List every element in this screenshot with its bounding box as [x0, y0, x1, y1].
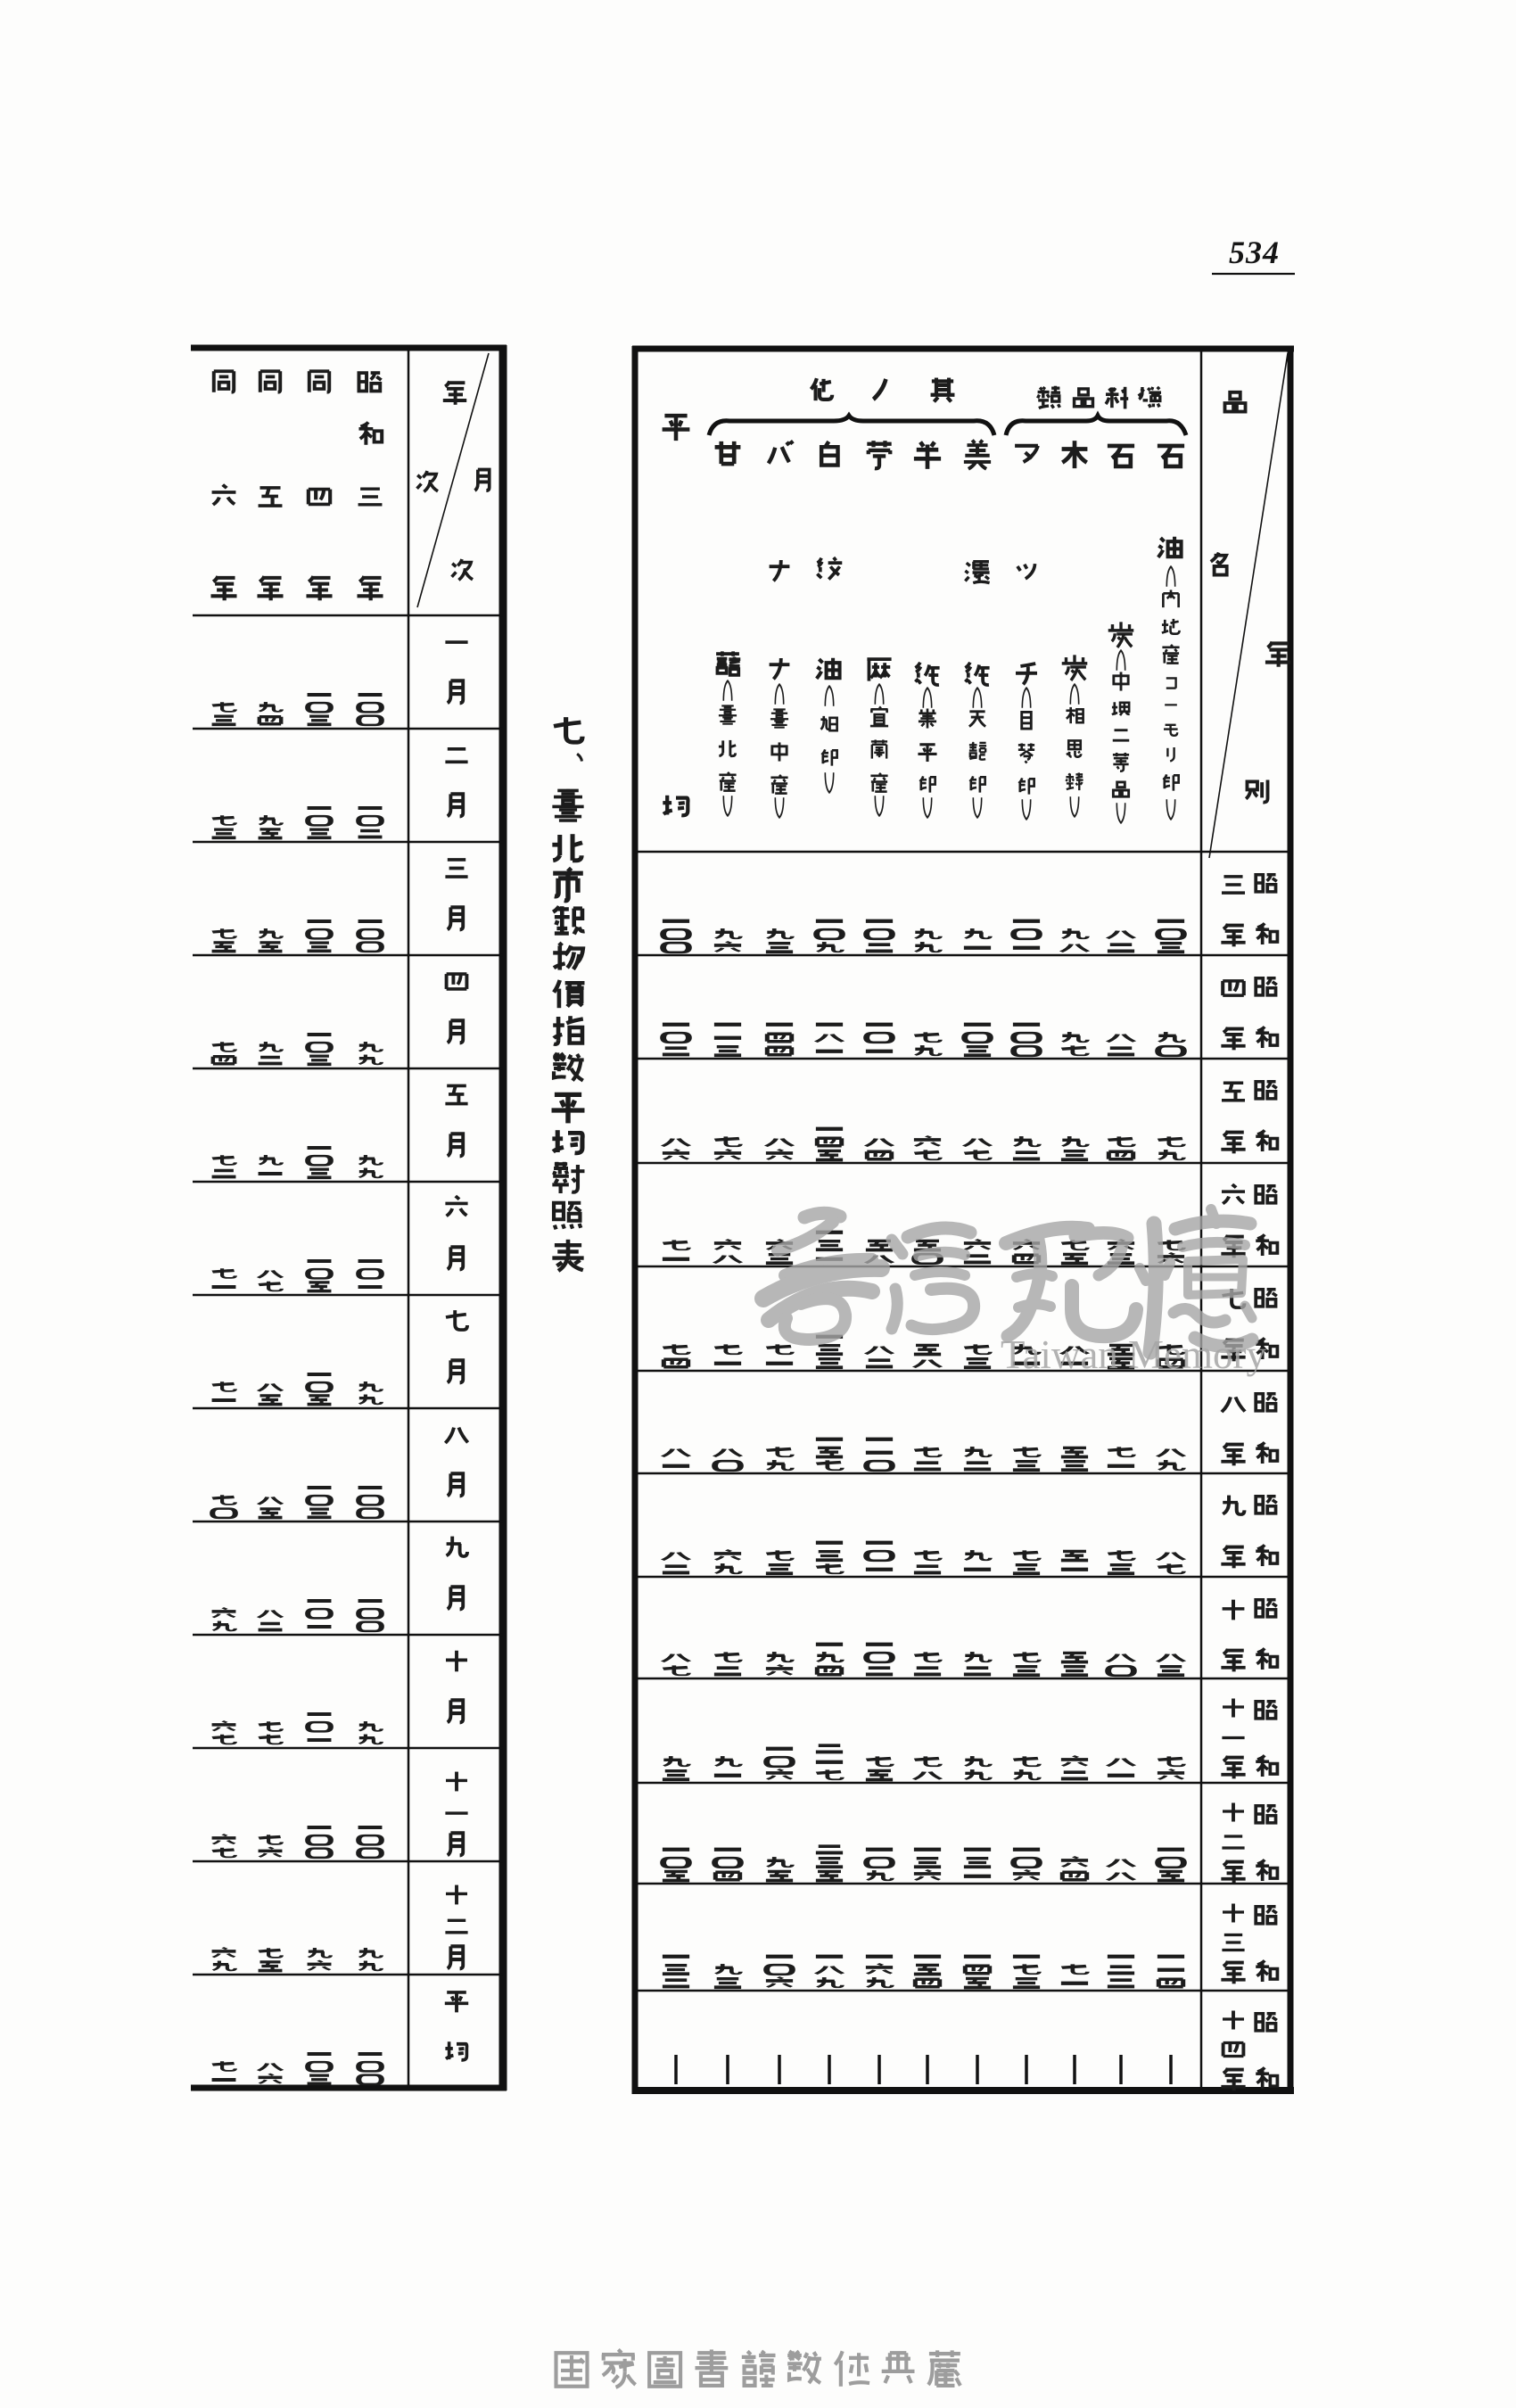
- svg-text:534: 534: [1229, 235, 1280, 270]
- svg-text:Taiwan Memory: Taiwan Memory: [1001, 1332, 1267, 1377]
